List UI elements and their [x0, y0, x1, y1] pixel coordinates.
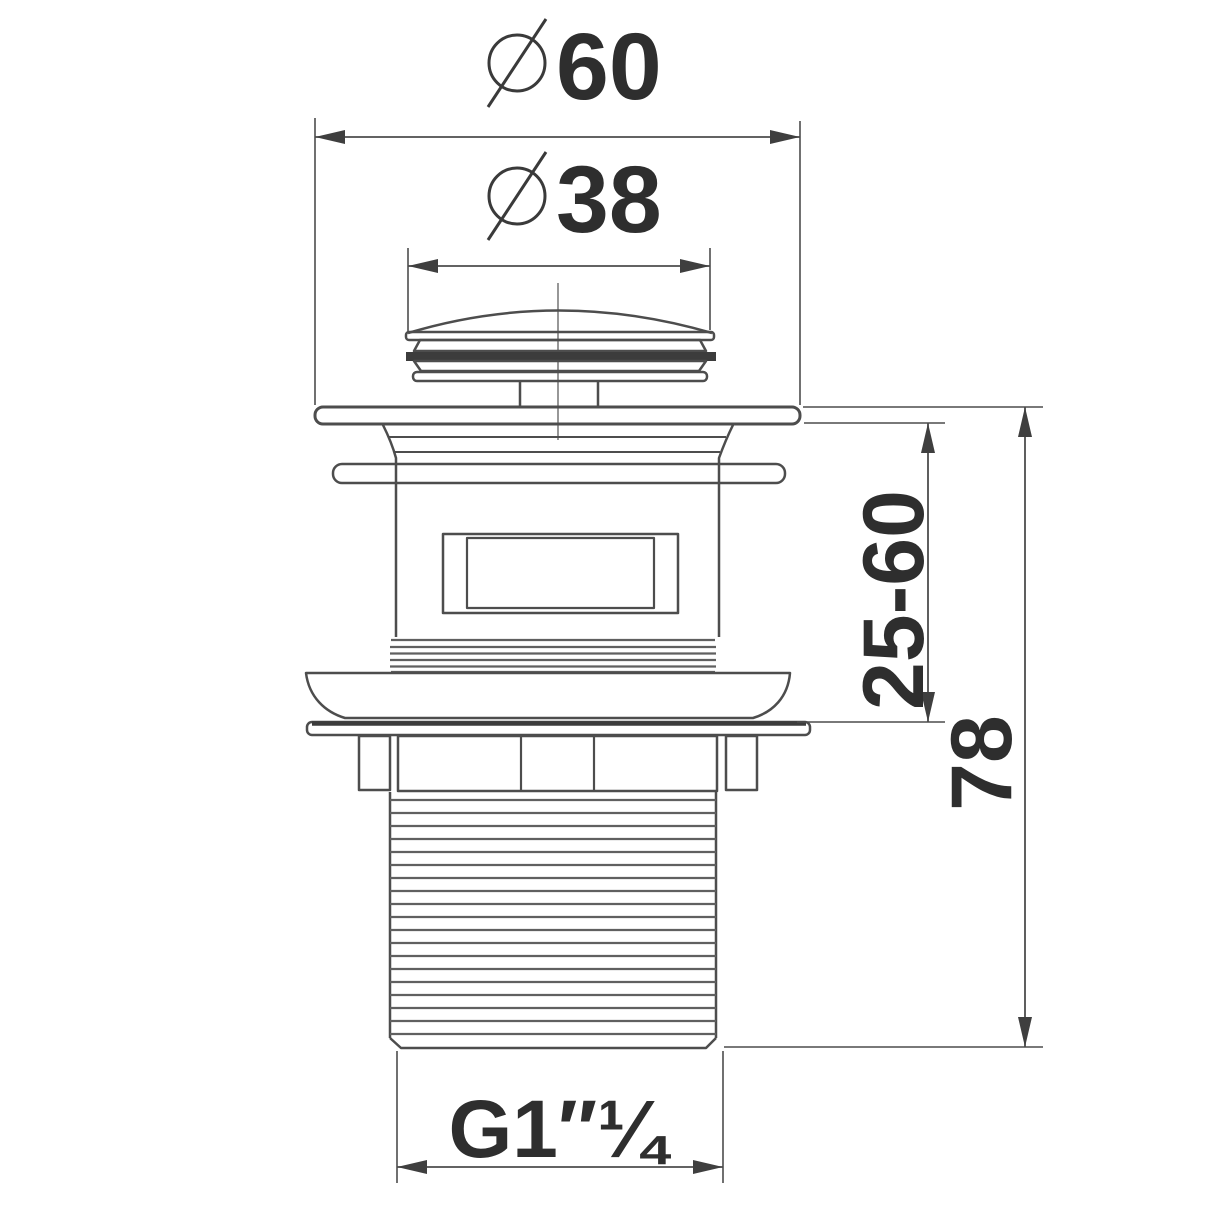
dimension-text-38: 38: [556, 147, 662, 253]
drain-drawing-svg: 60 38 25-60 78 G1″¼: [0, 0, 1214, 1214]
technical-drawing-page: 60 38 25-60 78 G1″¼: [0, 0, 1214, 1214]
dimension-text-78: 78: [934, 715, 1030, 811]
dimension-text-thread: G1″¼: [448, 1084, 671, 1175]
dimension-text-25-60: 25-60: [846, 490, 942, 710]
dimension-text-60: 60: [556, 14, 662, 120]
